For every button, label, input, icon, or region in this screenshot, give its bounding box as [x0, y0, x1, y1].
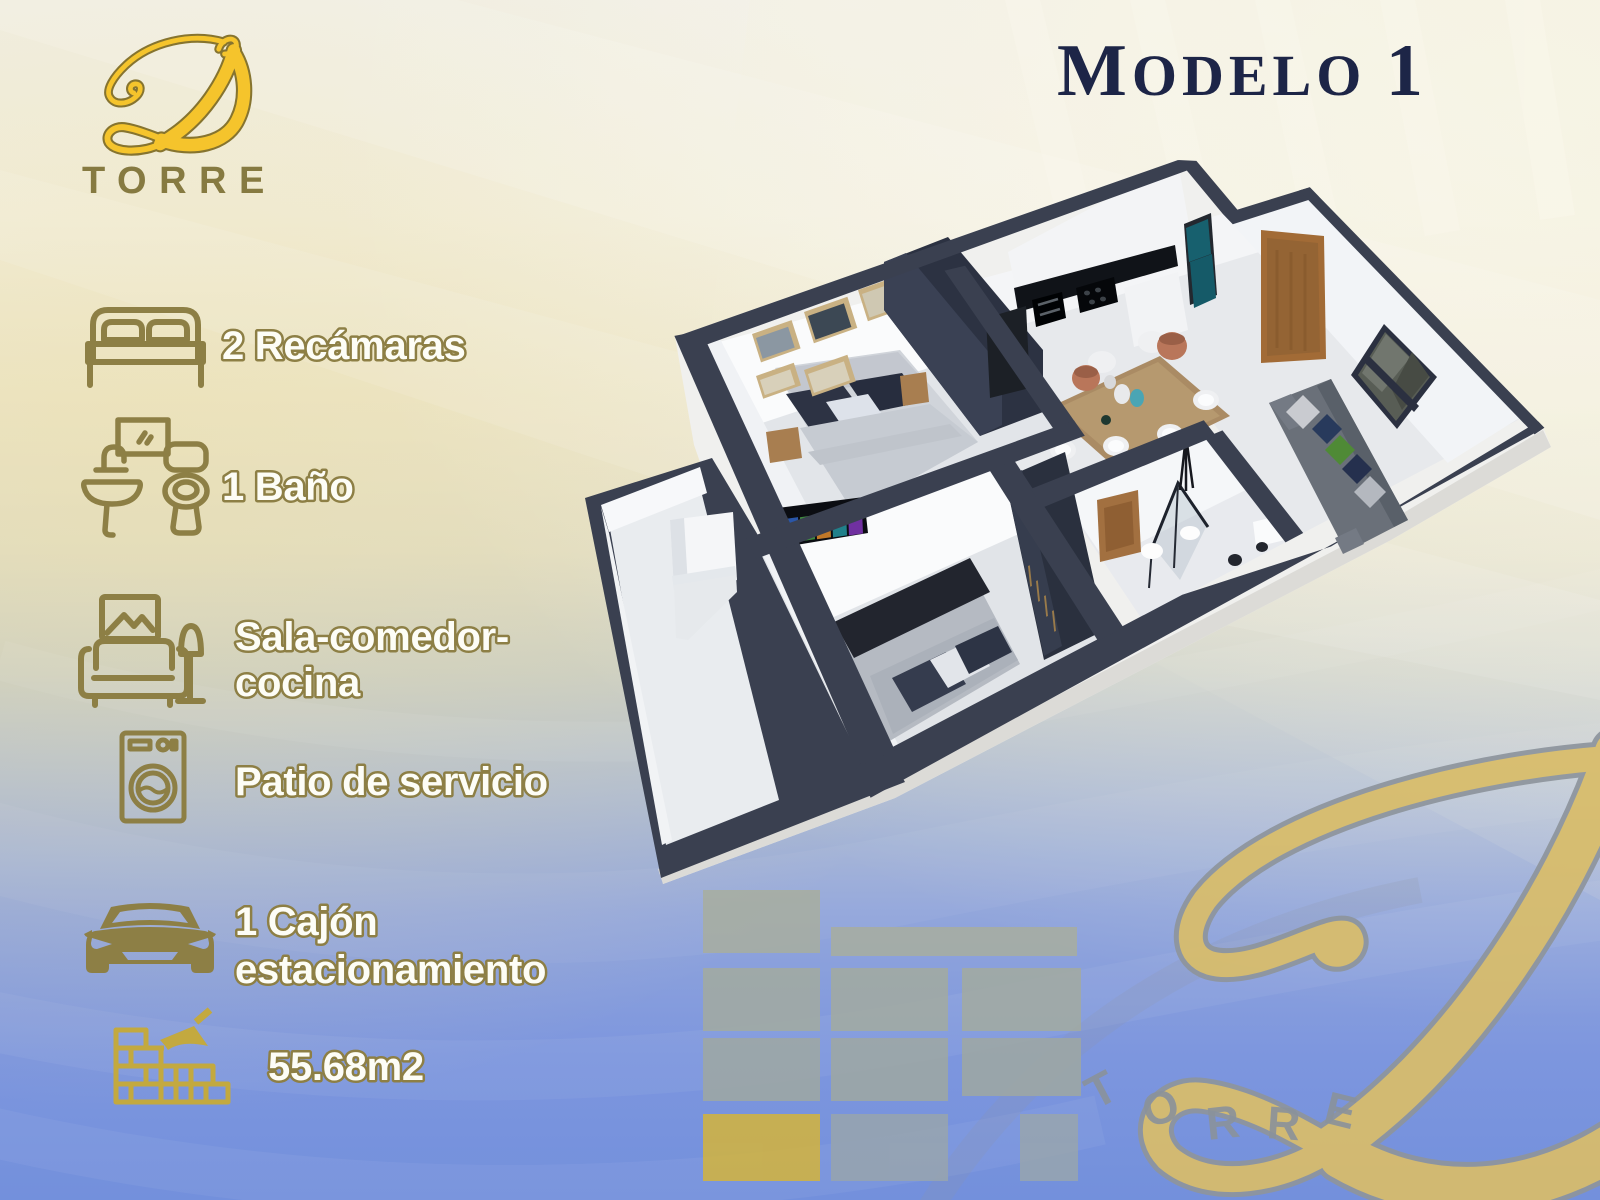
- svg-text:estacionamiento: estacionamiento: [235, 948, 546, 992]
- svg-text:55.68m2: 55.68m2: [268, 1045, 424, 1089]
- svg-text:Sala-comedor-: Sala-comedor-: [235, 615, 509, 659]
- svg-text:Patio de servicio: Patio de servicio: [235, 760, 548, 804]
- svg-text:1 Cajón: 1 Cajón: [235, 900, 377, 944]
- svg-text:cocina: cocina: [235, 661, 361, 705]
- svg-text:2 Recámaras: 2 Recámaras: [222, 324, 466, 368]
- svg-text:TORRE: TORRE: [82, 160, 277, 202]
- svg-text:1 Baño: 1 Baño: [222, 465, 354, 509]
- svg-text:MODELO 1: MODELO 1: [1057, 30, 1428, 112]
